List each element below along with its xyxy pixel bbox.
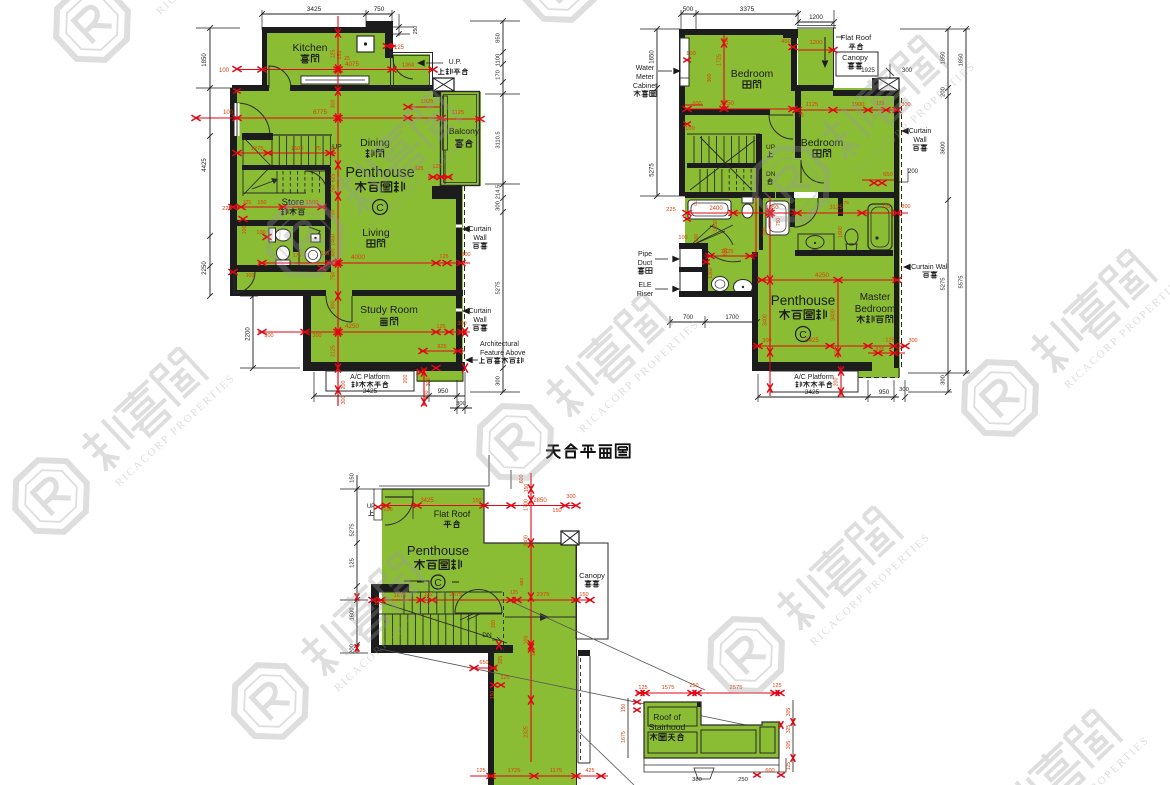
svg-text:125: 125 <box>772 683 781 689</box>
svg-text:5275: 5275 <box>941 278 947 291</box>
svg-text:4250: 4250 <box>815 272 830 279</box>
svg-text:380: 380 <box>519 578 525 586</box>
svg-text:100: 100 <box>524 636 530 645</box>
svg-text:300: 300 <box>491 620 497 629</box>
svg-text:100: 100 <box>246 273 255 279</box>
svg-text:4075: 4075 <box>345 61 360 68</box>
svg-text:950: 950 <box>879 389 890 396</box>
svg-text:Wall: Wall <box>473 235 487 242</box>
svg-text:300: 300 <box>762 338 771 344</box>
svg-text:Penthouse: Penthouse <box>771 293 836 308</box>
svg-text:125: 125 <box>439 254 448 260</box>
svg-text:1575: 1575 <box>662 685 675 691</box>
svg-text:3400: 3400 <box>831 309 837 321</box>
svg-text:300: 300 <box>901 204 910 210</box>
svg-text:100: 100 <box>694 234 700 243</box>
svg-text:175: 175 <box>293 253 302 259</box>
svg-text:75: 75 <box>315 146 321 152</box>
svg-text:2200: 2200 <box>246 327 252 341</box>
svg-text:3600: 3600 <box>941 142 947 155</box>
svg-text:3425: 3425 <box>420 498 434 504</box>
svg-text:75: 75 <box>843 200 849 206</box>
svg-text:Canopy: Canopy <box>579 571 605 580</box>
svg-text:1725: 1725 <box>508 768 521 774</box>
svg-text:3425: 3425 <box>363 388 378 395</box>
svg-text:1675: 1675 <box>621 731 627 743</box>
svg-text:Bedroom: Bedroom <box>855 304 896 315</box>
svg-text:200: 200 <box>350 644 356 654</box>
svg-text:Canopy: Canopy <box>842 53 868 62</box>
svg-text:150: 150 <box>490 691 496 700</box>
svg-text:750: 750 <box>331 272 337 281</box>
svg-text:305: 305 <box>786 708 792 717</box>
svg-text:25: 25 <box>344 56 350 62</box>
svg-text:Kitchen: Kitchen <box>292 42 327 54</box>
svg-text:Feature Above: Feature Above <box>480 350 526 357</box>
svg-text:ELE: ELE <box>638 282 652 289</box>
svg-text:2250: 2250 <box>202 261 208 275</box>
svg-text:Cabinet: Cabinet <box>633 83 657 90</box>
svg-text:625: 625 <box>331 174 337 183</box>
svg-text:200: 200 <box>834 378 840 387</box>
svg-text:225: 225 <box>222 206 232 212</box>
svg-text:125: 125 <box>331 50 337 59</box>
svg-text:1700: 1700 <box>524 499 530 511</box>
svg-text:300: 300 <box>899 387 909 393</box>
svg-text:125: 125 <box>882 204 891 210</box>
svg-text:1700: 1700 <box>725 315 739 321</box>
svg-text:1275: 1275 <box>251 146 264 152</box>
svg-text:A/C Platform: A/C Platform <box>350 374 390 381</box>
svg-text:1300: 1300 <box>708 267 714 278</box>
svg-text:300: 300 <box>341 396 347 405</box>
svg-text:300: 300 <box>566 494 575 500</box>
svg-text:1925: 1925 <box>861 67 875 74</box>
svg-text:Stairhood: Stairhood <box>649 722 686 732</box>
svg-text:3425: 3425 <box>307 6 322 13</box>
svg-text:2850: 2850 <box>533 498 547 504</box>
svg-text:125: 125 <box>436 324 445 330</box>
svg-text:250: 250 <box>689 683 698 689</box>
svg-text:Wall: Wall <box>913 137 927 144</box>
svg-text:4250: 4250 <box>345 323 360 330</box>
svg-text:200: 200 <box>403 375 409 384</box>
svg-text:3375: 3375 <box>740 6 755 13</box>
svg-text:100: 100 <box>685 126 695 132</box>
svg-text:300: 300 <box>941 375 947 385</box>
svg-text:300: 300 <box>331 301 337 310</box>
svg-text:150: 150 <box>350 473 356 483</box>
svg-text:Water: Water <box>636 65 655 72</box>
svg-text:Flat Roof: Flat Roof <box>841 33 872 42</box>
svg-text:Curtain Wall: Curtain Wall <box>911 264 949 271</box>
svg-text:250: 250 <box>738 777 748 783</box>
svg-text:100: 100 <box>686 51 696 57</box>
svg-text:5275: 5275 <box>350 524 356 537</box>
svg-text:150: 150 <box>383 507 392 513</box>
svg-text:UP: UP <box>367 504 375 510</box>
svg-text:100: 100 <box>242 226 248 235</box>
svg-text:380: 380 <box>692 777 702 783</box>
svg-text:3400: 3400 <box>763 314 769 326</box>
svg-text:5275: 5275 <box>496 282 502 295</box>
svg-text:3125: 3125 <box>829 205 843 211</box>
svg-text:C: C <box>799 329 807 341</box>
svg-text:650: 650 <box>883 172 893 178</box>
svg-text:300: 300 <box>312 333 321 339</box>
svg-text:2325: 2325 <box>524 726 530 738</box>
svg-text:75: 75 <box>798 113 804 119</box>
svg-text:750: 750 <box>374 6 385 13</box>
svg-text:700: 700 <box>763 228 769 237</box>
svg-text:300: 300 <box>707 74 713 83</box>
svg-text:3300: 3300 <box>524 535 530 547</box>
svg-text:125: 125 <box>724 37 730 46</box>
svg-text:1175: 1175 <box>550 768 562 774</box>
svg-text:1100: 1100 <box>496 54 502 66</box>
svg-text:1600: 1600 <box>838 226 844 238</box>
svg-text:2125: 2125 <box>331 345 337 357</box>
svg-text:3425: 3425 <box>805 338 819 344</box>
svg-text:300: 300 <box>331 100 337 109</box>
svg-text:Curtain: Curtain <box>469 308 492 315</box>
svg-text:100: 100 <box>256 230 265 236</box>
svg-text:1650: 1650 <box>650 50 656 64</box>
svg-text:4425: 4425 <box>202 158 208 172</box>
svg-text:CL: CL <box>693 200 698 206</box>
svg-text:100: 100 <box>219 68 230 74</box>
svg-text:Pipe: Pipe <box>638 251 652 258</box>
svg-text:DN: DN <box>482 632 492 639</box>
svg-text:200: 200 <box>341 381 347 390</box>
svg-text:300: 300 <box>834 348 840 357</box>
svg-text:125: 125 <box>885 338 894 344</box>
svg-text:Curtain: Curtain <box>469 226 492 233</box>
svg-text:Master: Master <box>860 292 891 303</box>
svg-text:170: 170 <box>496 70 502 80</box>
svg-text:Study Room: Study Room <box>360 304 418 316</box>
svg-text:600: 600 <box>692 101 701 107</box>
svg-text:300: 300 <box>457 321 466 327</box>
svg-text:825: 825 <box>437 344 446 350</box>
svg-text:300: 300 <box>496 201 502 211</box>
svg-text:1364: 1364 <box>402 63 414 69</box>
svg-text:300: 300 <box>496 376 502 386</box>
svg-text:Flat Roof: Flat Roof <box>434 509 471 519</box>
svg-text:950: 950 <box>438 388 449 395</box>
svg-text:125: 125 <box>638 685 647 691</box>
svg-text:Bedroom: Bedroom <box>731 68 774 80</box>
svg-text:6775: 6775 <box>313 109 328 116</box>
svg-text:125: 125 <box>786 762 792 771</box>
svg-text:150: 150 <box>472 498 481 504</box>
svg-text:UP: UP <box>332 144 342 151</box>
svg-text:Architectural: Architectural <box>480 341 519 348</box>
svg-text:Meter: Meter <box>636 74 655 81</box>
svg-text:Penthouse: Penthouse <box>407 543 469 558</box>
svg-text:5275: 5275 <box>650 163 656 177</box>
svg-text:A/C Platform: A/C Platform <box>794 374 834 381</box>
svg-text:300: 300 <box>908 338 917 344</box>
svg-text:325: 325 <box>243 200 252 206</box>
svg-text:225: 225 <box>666 207 676 213</box>
svg-text:1200: 1200 <box>809 14 823 21</box>
svg-text:850: 850 <box>496 33 502 43</box>
svg-text:Duct: Duct <box>638 260 652 267</box>
svg-text:2375: 2375 <box>537 592 550 598</box>
svg-text:825: 825 <box>875 347 884 353</box>
svg-text:214.5: 214.5 <box>496 185 502 200</box>
svg-text:100: 100 <box>223 110 234 116</box>
svg-text:300: 300 <box>264 333 273 339</box>
svg-text:150: 150 <box>579 592 588 598</box>
svg-text:5575: 5575 <box>959 276 965 289</box>
svg-text:150: 150 <box>621 704 627 713</box>
svg-text:100: 100 <box>678 235 687 241</box>
svg-text:325: 325 <box>498 656 504 665</box>
svg-text:125: 125 <box>476 768 485 774</box>
svg-text:500: 500 <box>683 6 694 13</box>
svg-text:1725: 1725 <box>717 54 723 66</box>
svg-text:U.P.: U.P. <box>449 59 462 66</box>
svg-text:3110.5: 3110.5 <box>496 131 502 148</box>
svg-text:125: 125 <box>500 675 509 681</box>
svg-text:200: 200 <box>908 169 919 175</box>
svg-text:1850: 1850 <box>202 53 208 67</box>
svg-text:125: 125 <box>350 558 356 568</box>
svg-text:Wall: Wall <box>473 317 487 324</box>
svg-text:2575: 2575 <box>450 592 463 598</box>
svg-text:1200: 1200 <box>810 40 823 46</box>
svg-text:300: 300 <box>461 252 470 258</box>
svg-text:750: 750 <box>331 185 337 194</box>
svg-text:2400: 2400 <box>709 206 723 212</box>
svg-text:300: 300 <box>456 401 466 407</box>
svg-text:1500: 1500 <box>291 146 304 152</box>
svg-text:1125: 1125 <box>806 102 818 108</box>
svg-text:150: 150 <box>257 200 266 206</box>
svg-text:1825: 1825 <box>721 249 734 255</box>
svg-text:600: 600 <box>765 768 774 774</box>
svg-text:3425: 3425 <box>805 389 820 396</box>
svg-text:650: 650 <box>479 660 488 666</box>
svg-text:305: 305 <box>786 741 792 750</box>
svg-text:1650: 1650 <box>713 220 719 232</box>
svg-text:150: 150 <box>552 508 561 514</box>
svg-text:4000: 4000 <box>351 254 366 261</box>
svg-text:Roof of: Roof of <box>653 712 681 722</box>
svg-text:150: 150 <box>524 484 530 493</box>
svg-text:125: 125 <box>510 590 519 596</box>
svg-text:100: 100 <box>531 648 537 657</box>
svg-text:425: 425 <box>585 768 594 774</box>
